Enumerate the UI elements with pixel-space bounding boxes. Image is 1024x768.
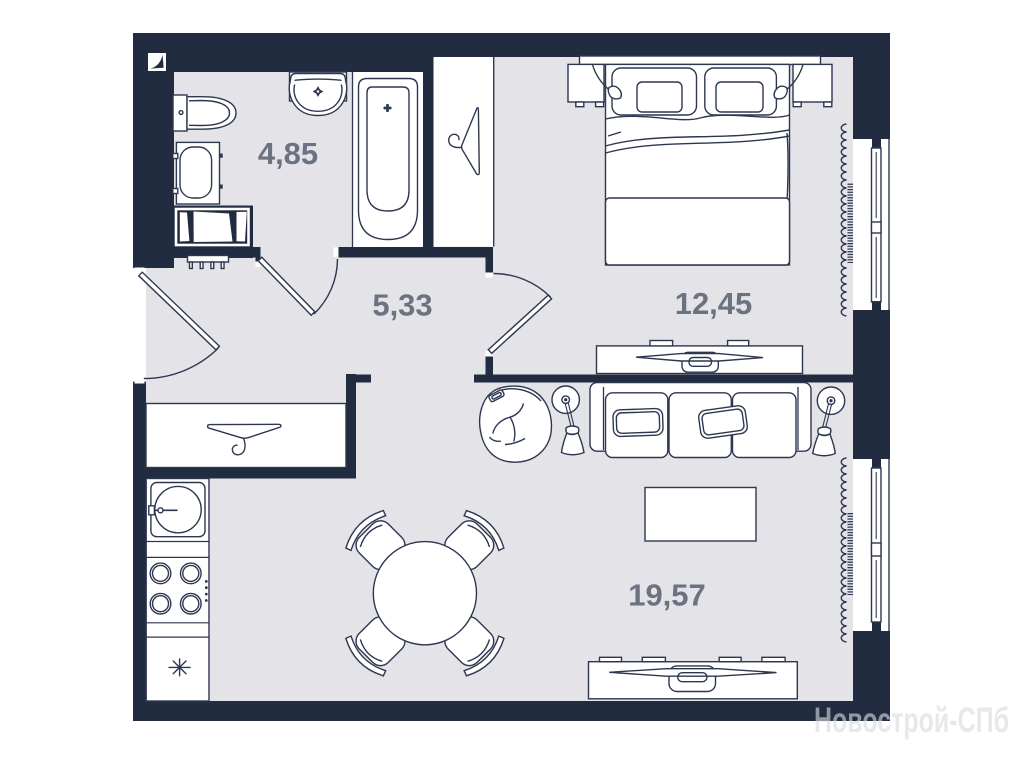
svg-text:19,57: 19,57: [628, 578, 706, 613]
svg-text:4,85: 4,85: [258, 136, 318, 171]
svg-text:12,45: 12,45: [675, 286, 753, 321]
svg-text:5,33: 5,33: [372, 288, 432, 323]
svg-text:Новострой-СПб: Новострой-СПб: [814, 701, 1009, 740]
